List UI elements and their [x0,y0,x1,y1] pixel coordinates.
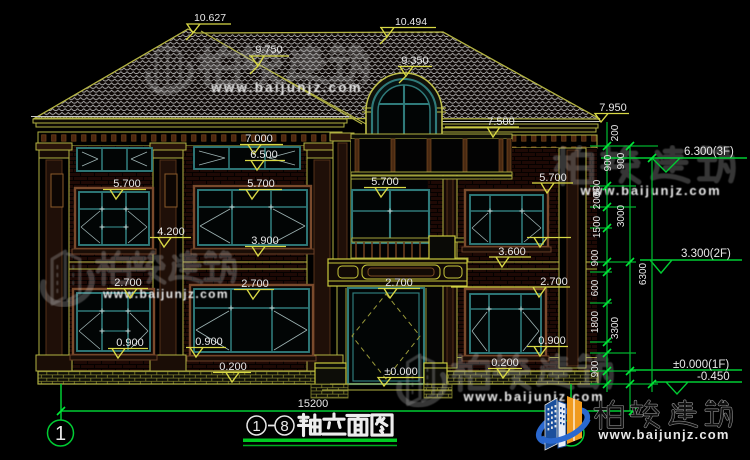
svg-text:7.000: 7.000 [245,133,273,145]
svg-text:3.600: 3.600 [498,246,526,258]
svg-text:3300: 3300 [610,316,621,339]
svg-text:www.baijunjz.com: www.baijunjz.com [210,80,363,95]
svg-text:3000: 3000 [616,204,627,227]
svg-text:6.500: 6.500 [250,149,278,161]
svg-text:900: 900 [590,249,601,266]
svg-text:1: 1 [252,418,260,435]
svg-text:9.750: 9.750 [255,44,283,56]
svg-text:5.700: 5.700 [539,172,567,184]
svg-text:200: 200 [592,192,603,209]
svg-text:900: 900 [616,152,627,169]
svg-text:900: 900 [590,360,601,377]
svg-text:9.350: 9.350 [401,55,429,67]
svg-text:±0.000: ±0.000 [384,366,418,378]
svg-text:www.baijunjz.com: www.baijunjz.com [597,427,729,442]
svg-text:5.700: 5.700 [113,178,141,190]
svg-text:0.900: 0.900 [538,335,566,347]
svg-text:600: 600 [590,279,601,296]
svg-text:www.baijunjz.com: www.baijunjz.com [463,389,605,404]
svg-text:7.950: 7.950 [599,102,627,114]
svg-text:0.900: 0.900 [116,337,144,349]
svg-text:7.500: 7.500 [487,116,515,128]
svg-text:0.900: 0.900 [195,336,223,348]
svg-text:2.700: 2.700 [114,277,142,289]
svg-text:200: 200 [610,124,621,141]
svg-text:1800: 1800 [590,310,601,333]
svg-text:15200: 15200 [298,398,329,410]
svg-text:10.627: 10.627 [194,12,226,24]
svg-text:4.200: 4.200 [157,226,185,238]
svg-text:10.494: 10.494 [395,16,427,28]
svg-text:3.900: 3.900 [251,235,279,247]
svg-text:5.700: 5.700 [371,176,399,188]
svg-text:5.700: 5.700 [247,178,275,190]
svg-text:2.700: 2.700 [385,277,413,289]
svg-text:6.300(3F): 6.300(3F) [684,146,734,158]
svg-text:1: 1 [55,423,66,445]
svg-text:2.700: 2.700 [241,278,269,290]
svg-text:3.300(2F): 3.300(2F) [681,248,731,260]
svg-text:8: 8 [280,418,288,435]
svg-text:0.200: 0.200 [491,357,519,369]
svg-text:-0.450: -0.450 [697,371,730,383]
svg-text:6300: 6300 [638,262,649,285]
svg-text:±0.000(1F): ±0.000(1F) [673,359,729,371]
svg-text:900: 900 [603,154,614,171]
svg-text:1500: 1500 [592,215,603,238]
svg-text:0.200: 0.200 [219,361,247,373]
svg-text:2.700: 2.700 [540,276,568,288]
